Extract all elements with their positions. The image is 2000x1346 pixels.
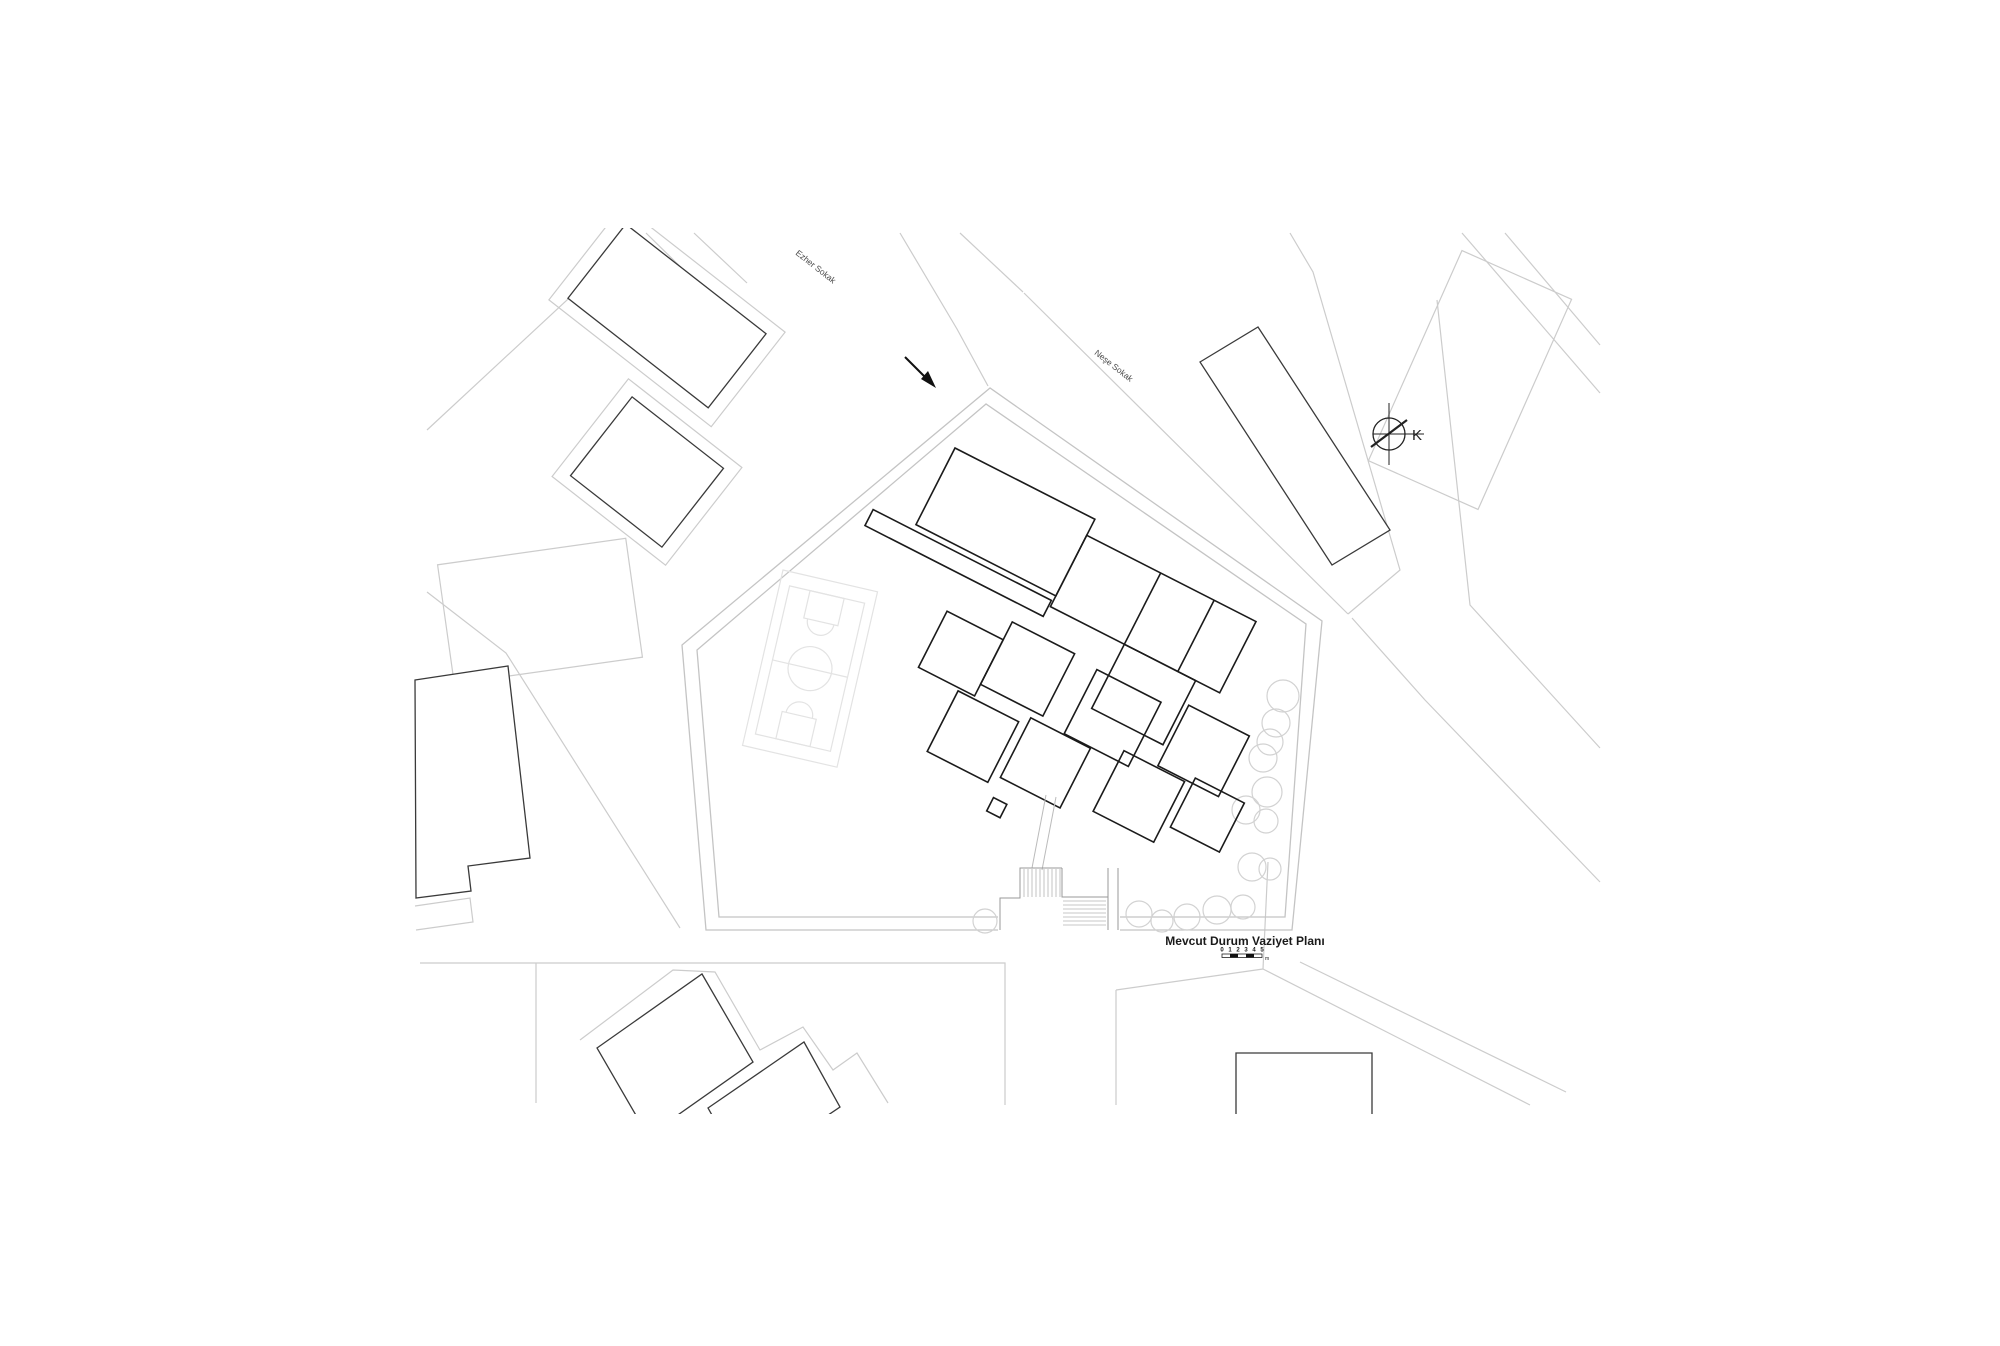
entrance-walkway [1032,795,1056,870]
street-label-ezher-sokak: Ezher Sokak [794,248,839,286]
north-arrow-icon [905,357,936,388]
scale-unit: m [1265,956,1269,962]
site-plan-page: Ezher Sokak Neşe Sokak K Mevcut Durum Va… [0,0,2000,1346]
street-label-nese-sokak: Neşe Sokak [1093,348,1136,385]
trees [973,680,1299,933]
north-symbol: K [1371,403,1424,465]
scale-tick-1: 1 [1228,948,1232,954]
site-plan-drawing: Ezher Sokak Neşe Sokak K Mevcut Durum Va… [0,0,2000,1346]
basketball-court [743,570,878,767]
drawing-title: Mevcut Durum Vaziyet Planı [1165,934,1324,948]
site-boundary [682,388,1322,930]
scale-tick-4: 4 [1252,948,1256,954]
neighbor-buildings [415,224,1390,1172]
street-and-parcel-lines [415,205,1600,1105]
scale-tick-3: 3 [1244,948,1248,954]
north-symbol-label: K [1412,427,1422,444]
school-building-cluster [775,428,1329,914]
scale-tick-2: 2 [1236,948,1240,954]
scale-tick-0: 0 [1220,948,1224,954]
scale-bar: 0 1 2 3 4 5 m [1220,948,1269,963]
